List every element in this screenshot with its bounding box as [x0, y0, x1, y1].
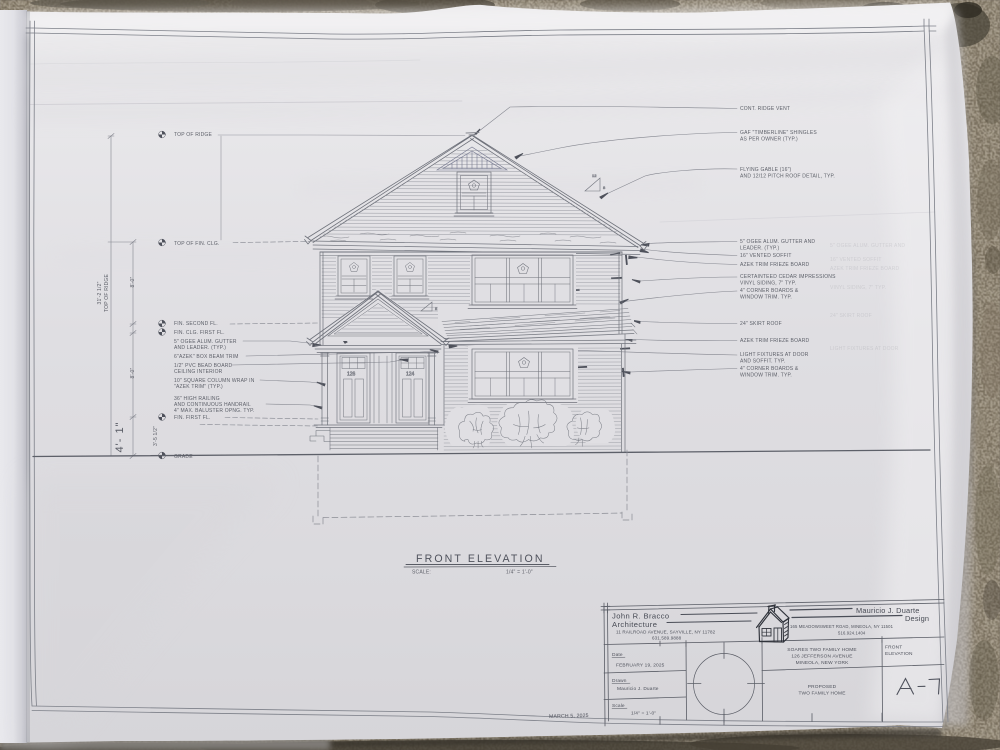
svg-text:VINYL SIDING, 7" TYP.: VINYL SIDING, 7" TYP. [740, 281, 796, 287]
svg-text:AND SOFFIT. TYP.: AND SOFFIT. TYP. [740, 359, 786, 365]
svg-text:8'-0": 8'-0" [130, 277, 136, 288]
svg-text:CERTAINTEED CEDAR IMPRESSIONS: CERTAINTEED CEDAR IMPRESSIONS [740, 274, 836, 280]
svg-text:1/4" = 1'-0": 1/4" = 1'-0" [506, 570, 533, 576]
svg-text:SOARES TWO FAMILY HOME: SOARES TWO FAMILY HOME [787, 647, 856, 653]
svg-text:5" OGEE ALUM. GUTTER AND: 5" OGEE ALUM. GUTTER AND [830, 243, 905, 249]
svg-text:631.589.9888: 631.589.9888 [652, 636, 682, 641]
svg-text:24" SKIRT ROOF: 24" SKIRT ROOF [740, 321, 782, 327]
svg-text:VINYL SIDING, 7" TYP.: VINYL SIDING, 7" TYP. [830, 285, 886, 291]
svg-text:12: 12 [592, 173, 597, 178]
svg-text:FIN. CLG. FIRST FL.: FIN. CLG. FIRST FL. [174, 330, 225, 336]
svg-text:CEILING INTERIOR: CEILING INTERIOR [174, 369, 223, 375]
svg-text:4" MAX. BALUSTER OPNG. TYP.: 4" MAX. BALUSTER OPNG. TYP. [174, 408, 255, 414]
svg-text:6"AZEK" BOX BEAM TRIM: 6"AZEK" BOX BEAM TRIM [174, 354, 239, 360]
svg-text:124: 124 [406, 372, 415, 378]
svg-text:MINEOLA, NEW YORK: MINEOLA, NEW YORK [796, 660, 849, 666]
svg-text:FRONT: FRONT [885, 645, 902, 651]
svg-text:126 JEFFERSON AVENUE: 126 JEFFERSON AVENUE [791, 654, 852, 660]
svg-text:FIN. FIRST FL.: FIN. FIRST FL. [174, 415, 211, 421]
svg-text:FEBRUARY 19, 2025: FEBRUARY 19, 2025 [616, 663, 665, 669]
svg-text:SCALE:: SCALE: [412, 570, 431, 576]
svg-text:LIGHT FIXTURES AT DOOR: LIGHT FIXTURES AT DOOR [740, 352, 809, 358]
svg-text:4" CORNER BOARDS &: 4" CORNER BOARDS & [740, 366, 799, 372]
svg-text:AZEK TRIM FRIEZE BOARD: AZEK TRIM FRIEZE BOARD [740, 338, 810, 344]
svg-text:1/4" = 1'-0": 1/4" = 1'-0" [631, 711, 656, 717]
svg-text:3'-5 1/2": 3'-5 1/2" [153, 426, 159, 446]
svg-text:165 MEADOWSWEET ROAD, MINEOLA,: 165 MEADOWSWEET ROAD, MINEOLA, NY 11501 [790, 624, 894, 629]
svg-text:WINDOW TRIM. TYP.: WINDOW TRIM. TYP. [740, 295, 792, 301]
svg-text:AND 12/12 PITCH ROOF DETAIL,: AND 12/12 PITCH ROOF DETAIL, TYP. [740, 174, 835, 180]
svg-text:MARCH 5, 2025: MARCH 5, 2025 [549, 713, 589, 720]
svg-text:516.924.1404: 516.924.1404 [838, 631, 866, 636]
svg-text:TOP OF FIN. CLG.: TOP OF FIN. CLG. [174, 241, 220, 247]
svg-text:Design: Design [905, 614, 929, 623]
svg-text:31'-2 1/2": 31'-2 1/2" [97, 281, 103, 304]
svg-text:CONT. RIDGE VENT: CONT. RIDGE VENT [740, 106, 790, 112]
svg-text:8'-0": 8'-0" [130, 368, 136, 379]
svg-text:LEADER. (TYP.): LEADER. (TYP.) [740, 246, 780, 252]
svg-text:24" SKIRT ROOF: 24" SKIRT ROOF [830, 313, 872, 319]
svg-text:4" CORNER BOARDS &: 4" CORNER BOARDS & [740, 288, 799, 294]
svg-text:GAF "TIMBERLINE" SHINGLES: GAF "TIMBERLINE" SHINGLES [740, 130, 817, 136]
svg-text:"AZEK TRIM" (TYP.): "AZEK TRIM" (TYP.) [174, 384, 223, 390]
svg-text:11 RAILROAD AVENUE, SAYVILLE,: 11 RAILROAD AVENUE, SAYVILLE, NY 11782 [616, 630, 716, 635]
svg-text:TOP OF RIDGE: TOP OF RIDGE [104, 274, 110, 313]
svg-text:AS PER OWNER (TYP.): AS PER OWNER (TYP.) [740, 137, 798, 143]
svg-text:Mauricio J. Duarte: Mauricio J. Duarte [617, 686, 659, 692]
svg-text:PROPOSED: PROPOSED [808, 684, 837, 690]
svg-text:FIN. SECOND FL.: FIN. SECOND FL. [174, 321, 218, 327]
svg-text:126: 126 [347, 372, 356, 378]
svg-text:AZEK TRIM FRIEZE BOARD: AZEK TRIM FRIEZE BOARD [740, 262, 810, 268]
svg-text:FLYING GABLE (16"): FLYING GABLE (16") [740, 167, 792, 173]
svg-text:TOP OF RIDGE: TOP OF RIDGE [174, 132, 213, 138]
svg-text:16" VENTED SOFFIT: 16" VENTED SOFFIT [830, 257, 882, 263]
svg-text:ELEVATION: ELEVATION [885, 651, 913, 657]
svg-text:TWO FAMILY HOME: TWO FAMILY HOME [798, 691, 845, 697]
svg-text:16" VENTED SOFFIT: 16" VENTED SOFFIT [740, 253, 792, 259]
svg-text:FRONT ELEVATION: FRONT ELEVATION [416, 553, 545, 565]
svg-text:Architecture: Architecture [612, 620, 657, 629]
svg-text:AZEK TRIM FRIEZE BOARD: AZEK TRIM FRIEZE BOARD [830, 266, 900, 272]
svg-text:WINDOW TRIM. TYP.: WINDOW TRIM. TYP. [740, 373, 792, 379]
svg-text:5" OGEE ALUM. GUTTER AND: 5" OGEE ALUM. GUTTER AND [740, 239, 815, 245]
svg-text:LIGHT FIXTURES AT DOOR: LIGHT FIXTURES AT DOOR [830, 346, 899, 352]
svg-text:4'- 1": 4'- 1" [114, 422, 126, 453]
svg-text:AND LEADER. (TYP.): AND LEADER. (TYP.) [174, 345, 226, 351]
